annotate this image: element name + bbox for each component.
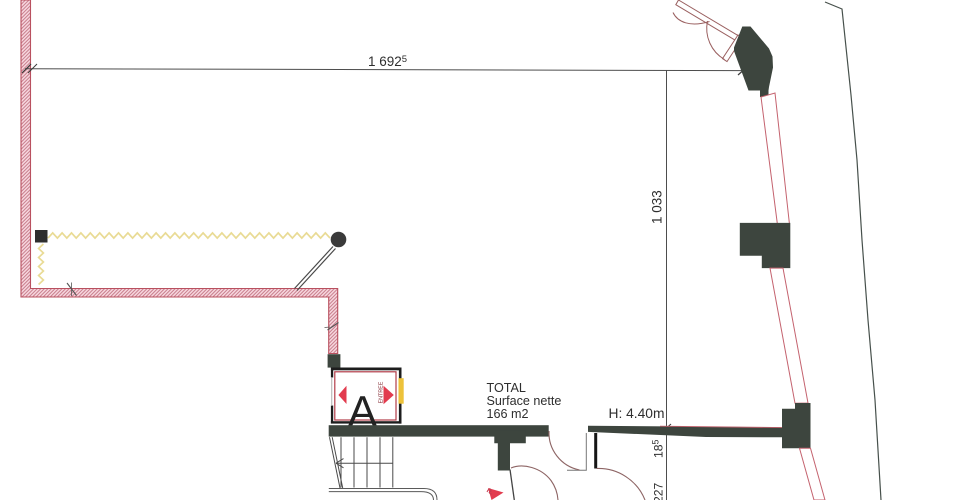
svg-text:166 m2: 166 m2 [487, 407, 529, 421]
svg-text:1 6925: 1 6925 [368, 54, 407, 69]
svg-text:ENTREE: ENTREE [378, 381, 384, 403]
svg-text:1 033: 1 033 [650, 190, 665, 224]
svg-text:227: 227 [652, 482, 666, 500]
svg-text:Surface nette: Surface nette [487, 394, 562, 408]
svg-text:TOTAL: TOTAL [487, 381, 526, 395]
svg-text:H: 4.40m: H: 4.40m [609, 406, 665, 421]
